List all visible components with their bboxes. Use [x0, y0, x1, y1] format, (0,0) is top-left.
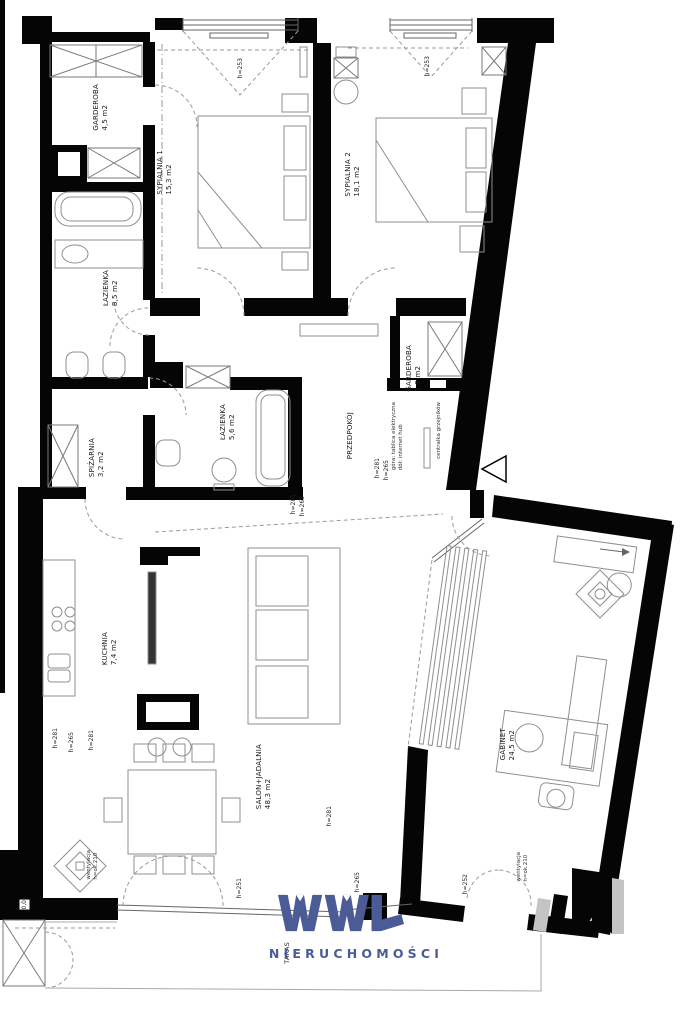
vent-label-gabinet: wentylacjah=ok.210	[516, 852, 530, 882]
vent-label-salon: wentylacjah=ok.210	[86, 850, 100, 880]
height-label: h=265	[68, 732, 76, 752]
bathtub-lazienka-2	[256, 390, 290, 486]
bidet	[103, 352, 125, 378]
height-label: h=265	[299, 496, 307, 516]
height-label: h=281	[374, 458, 382, 478]
room-label-spizarnia: SPIŻARNIA3,2 m2	[88, 438, 106, 477]
room-label-garderoba-2: GARDEROBA1,9 m2	[405, 345, 423, 392]
room-label-garderoba-1: GARDEROBA4,5 m2	[92, 84, 110, 131]
tv-panel	[148, 572, 156, 664]
height-label: h=265	[383, 460, 391, 480]
floorplan-page: GARDEROBA4,5 m2 SYPIALNIA 115,3 m2 SYPIA…	[0, 0, 688, 1023]
height-label: h=253	[424, 56, 432, 76]
washbasin	[62, 245, 88, 263]
logo-subtitle: NIERUCHOMOŚCI	[254, 946, 458, 961]
height-label: h=251	[236, 878, 244, 898]
room-label-sypialnia-1: SYPIALNIA 115,3 m2	[156, 150, 174, 195]
bed-sypialnia-2	[376, 88, 492, 252]
height-label: h=281	[88, 730, 96, 750]
toilet	[66, 352, 88, 378]
electrical-note: góra: tablica elektrycznadół: internet h…	[391, 402, 405, 470]
height-label: h=252	[462, 874, 470, 894]
room-label-lazienka-1: ŁAZIENKA8,5 m2	[102, 270, 120, 306]
hall-console	[300, 324, 378, 336]
radiator-manifold	[424, 428, 430, 468]
armchair	[334, 80, 358, 104]
room-label-lazienka-2: ŁAZIENKA5,6 m2	[219, 404, 237, 440]
heating-note: centralka grzejników	[436, 402, 443, 459]
vent-diamond-gabinet	[576, 570, 624, 618]
room-label-sypialnia-2: SYPIALNIA 218,1 m2	[344, 152, 362, 197]
bathtub-lazienka-1	[55, 192, 141, 226]
level-marker: 0,0	[20, 900, 30, 910]
office-furniture	[413, 521, 637, 815]
sofa-set	[248, 548, 340, 724]
room-label-gabinet: GABINET24,5 m2	[499, 728, 517, 760]
room-label-przedpokoj: PRZEDPOKÓJ	[346, 412, 355, 459]
wwl-logo: WWL NIERUCHOMOŚCI	[254, 884, 458, 980]
bar-stool	[173, 738, 191, 756]
bed-sypialnia-1	[198, 94, 310, 270]
height-label: h=281	[326, 806, 334, 826]
logo-brand-mark	[278, 884, 404, 942]
room-label-kuchnia: KUCHNIA7,4 m2	[101, 632, 119, 665]
round-basin	[212, 458, 236, 482]
kitchen-counter	[43, 560, 75, 696]
height-label: h=253	[237, 58, 245, 78]
entrance-arrow	[482, 456, 506, 482]
height-label: h=281	[290, 494, 298, 514]
dining-set	[104, 744, 240, 874]
height-label: h=281	[52, 728, 60, 748]
room-label-salon: SALON+JADALNIA48,3 m2	[255, 744, 273, 809]
washbasin-counter	[55, 240, 143, 268]
doors-layer	[15, 31, 531, 988]
toilet-2	[156, 440, 180, 466]
